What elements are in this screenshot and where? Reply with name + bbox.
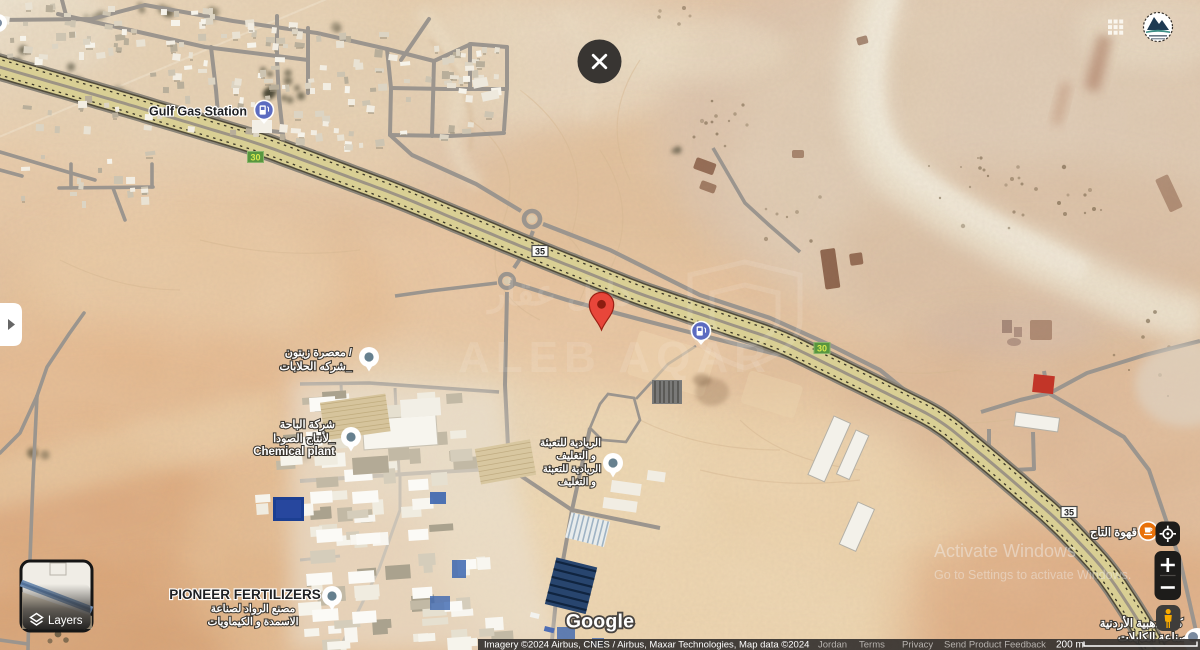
svg-text:30: 30 <box>817 344 827 354</box>
svg-text:الاسمدة و الكيماويات: الاسمدة و الكيماويات <box>207 616 298 628</box>
svg-text:Layers: Layers <box>48 615 83 627</box>
svg-text:Privacy: Privacy <box>902 640 933 650</box>
svg-text:Send Product Feedback: Send Product Feedback <box>944 640 1046 650</box>
svg-text:Google: Google <box>566 611 634 633</box>
svg-text:Imagery ©2024 Airbus, CNES / A: Imagery ©2024 Airbus, CNES / Airbus, Max… <box>484 640 809 650</box>
svg-text:35: 35 <box>535 247 545 257</box>
svg-text:قهوة التاج: قهوة التاج <box>1090 526 1138 540</box>
svg-text:30: 30 <box>250 153 260 163</box>
svg-text:الريادية للتعبئة: الريادية للتعبئة <box>540 437 601 449</box>
svg-text:Gulf Gas Station: Gulf Gas Station <box>149 105 247 119</box>
svg-text:Jordan: Jordan <box>818 640 847 650</box>
svg-text:Activate Windows: Activate Windows <box>934 541 1076 561</box>
svg-text:PIONEER FERTILIZERS: PIONEER FERTILIZERS <box>169 587 321 602</box>
svg-text:مصنع الرواد لصناعة: مصنع الرواد لصناعة <box>211 603 296 615</box>
svg-text:شركه الحلابات_: شركه الحلابات_ <box>280 361 353 373</box>
svg-text:شركة الباحة: شركة الباحة <box>280 419 335 431</box>
svg-text:لأنتاج الصودا_: لأنتاج الصودا_ <box>273 431 336 445</box>
svg-text:Go to Settings to activate Win: Go to Settings to activate Windows. <box>934 568 1131 582</box>
svg-text:معصرة زيتون /: معصرة زيتون / <box>285 347 352 359</box>
svg-text:و التغليف: و التغليف <box>558 477 596 488</box>
svg-text:35: 35 <box>1064 508 1074 518</box>
svg-text:الريادية للتعبئة: الريادية للتعبئة <box>543 464 601 475</box>
svg-text:200 m: 200 m <box>1056 640 1084 650</box>
svg-text:Chemical plant: Chemical plant <box>253 446 335 458</box>
svg-text:و التغليف: و التغليف <box>556 450 596 462</box>
svg-text:Terms: Terms <box>859 640 885 650</box>
